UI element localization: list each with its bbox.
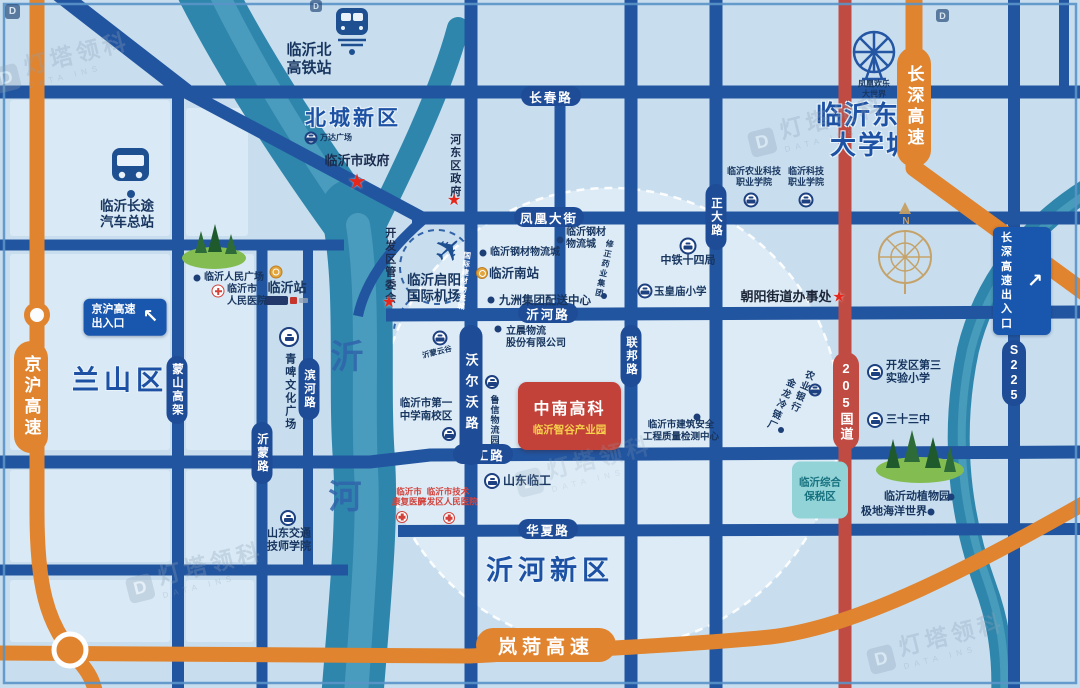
poi-polar-ocean-world: 极地海洋世界 <box>861 505 927 518</box>
renmin-square-dot <box>194 275 201 282</box>
poi-linyi-south-station: 临沂南站 <box>489 266 539 281</box>
expressway-junction-marker <box>54 634 86 666</box>
poi-renmin-square: 临沂人民广场 <box>204 272 264 284</box>
jinghu-exit-sign: 京沪高速 出入口 ↖ <box>84 299 167 336</box>
poi-renmin-hospital: 临沂市 人民医院 <box>227 284 267 308</box>
road-label-s225: S225 <box>1002 340 1026 406</box>
bonded-zone-block: 临沂综合 保税区 <box>792 462 848 519</box>
poi-shandong-lingong: 山东临工 <box>503 474 551 489</box>
road-label-woerwo: 沃尔沃路 <box>460 325 483 465</box>
poi-luxin-logistics-park: 鲁信物流园 <box>489 395 500 445</box>
poi-steel-logistics-city-1: 临沂钢材物流城 <box>490 247 560 259</box>
poi-north-rail-station: 临沂北 高铁站 <box>286 42 331 79</box>
expressway-label-lanhe: 岚菏高速 <box>476 628 616 662</box>
agri-tech-college-icon <box>744 193 759 208</box>
poi-yizhong-south-campus: 临沂市第一 中学南校区 <box>400 397 453 423</box>
district-label-yihe-new-district: 沂河新区 <box>486 555 614 586</box>
yimeng-cloud-valley-icon <box>433 331 448 346</box>
zhongtie-icon <box>680 238 697 255</box>
river-label-he: 河 <box>329 477 362 517</box>
district-label-lanshan: 兰山区 <box>72 365 168 396</box>
poi-hedong-district-government: 河东区政府 <box>447 134 460 199</box>
chaoyang-office-star-icon: ★ <box>832 290 845 305</box>
poi-jianzhu-quality-center: 临沂市建筑安全 工程质量检测中心 <box>643 419 719 442</box>
road-label-yimeng: 沂蒙路 <box>252 422 273 484</box>
watermark-corner-logo-icon: D <box>5 4 20 19</box>
linyi-area-map: 北城新区 临沂东部 大学城 兰山区 沂河新区 沂 河 京沪高速 长深高速 岚菏高… <box>0 0 1080 688</box>
jinlong-dot <box>778 427 784 433</box>
agricultural-bank-icon <box>809 384 822 397</box>
luxin-logistics-icon <box>485 375 499 389</box>
yizhong-icon <box>442 427 456 441</box>
road-label-changchun: 长春路 <box>521 86 581 106</box>
poi-city-hall: 临沂市政府 <box>324 153 389 169</box>
changshen-exit-sign: 长深高速 出入口 ↗ <box>993 227 1051 335</box>
arrow-northeast-icon: ↗ <box>1027 271 1043 290</box>
renmin-hospital-cross-icon <box>212 285 225 298</box>
poi-lichen-logistics: 立晨物流 股份有限公司 <box>506 326 566 350</box>
qingpi-plaza-icon <box>279 327 299 347</box>
district-label-beicheng: 北城新区 <box>305 107 401 131</box>
road-label-mengshan-viaduct: 蒙山高架 <box>167 356 188 424</box>
sanshisan-school-icon <box>867 412 883 428</box>
road-label-g205: 205国道 <box>833 352 859 450</box>
road-label-binhe: 滨河路 <box>299 358 320 420</box>
poi-sanshisan-school: 三十三中 <box>886 413 930 426</box>
wanda-plaza-icon <box>305 132 318 145</box>
poi-qingpi-culture-plaza: 青啤文化广场 <box>282 353 295 431</box>
road-label-fenghuang-street: 凤凰大街 <box>514 207 584 227</box>
poi-jiuzhou-distribution: 九洲集团配送中心 <box>499 294 591 308</box>
expressway-label-jinghu: 京沪高速 <box>14 341 48 453</box>
watermark-corner-logo-icon: D <box>936 9 949 22</box>
keji-college-icon <box>799 193 814 208</box>
poi-zoo-botanical-garden: 临沂动植物园 <box>884 490 950 503</box>
poi-yuhuangmiao-school: 玉皇庙小学 <box>654 286 707 299</box>
poi-steel-logistics-city-2: 临沂钢材 物流城 <box>566 227 606 251</box>
hedong-government-star-icon: ★ <box>447 193 461 209</box>
kangfu-hospital-cross-icon <box>396 511 408 523</box>
poi-zhongtie-14: 中铁十四局 <box>661 254 716 267</box>
poi-kaifaqu-hospital: 临沂市技术 开发区人民医院 <box>418 487 478 508</box>
zhongnan-hightech-subtitle: 临沂智谷产业园 <box>533 422 607 437</box>
development-zone-star-icon: ★ <box>382 295 396 311</box>
ocean-world-dot <box>928 509 935 516</box>
gangcai-2-dot <box>557 237 564 244</box>
compass-north-label: N <box>902 216 909 228</box>
xiuzheng-dot <box>601 293 607 299</box>
yuhuangmiao-school-icon <box>638 284 653 299</box>
poi-keji-college: 临沂科技 职业学院 <box>788 166 824 188</box>
road-label-huaxia: 华夏路 <box>518 519 578 539</box>
kaifaqu-hospital-cross-icon <box>443 512 455 524</box>
expressway-label-changshen: 长深高速 <box>897 47 931 167</box>
poi-disan-primary: 开发区第三 实验小学 <box>886 360 941 387</box>
poi-chaoyang-street-office: 朝阳街道办事处 <box>740 289 831 305</box>
linyi-south-station-icon <box>476 267 488 279</box>
jiaotong-college-icon <box>280 510 296 526</box>
road-label-zhengda: 正大路 <box>706 184 727 250</box>
poi-agri-tech-college: 临沂农业科技 职业学院 <box>727 166 781 188</box>
poi-jiaotong-college: 山东交通 技师学院 <box>267 528 311 555</box>
poi-linyi-station: 临沂站 <box>267 280 306 296</box>
disan-primary-icon <box>867 364 883 380</box>
zhongnan-hightech-park-block: 中南高科 临沂智谷产业园 <box>518 382 621 450</box>
poi-longdistance-bus-terminal: 临沂长途 汽车总站 <box>100 199 154 232</box>
river-label-yi: 沂 <box>331 337 364 377</box>
arrow-northwest-icon: ↖ <box>143 308 159 327</box>
watermark-corner-logo-icon: D <box>310 0 322 12</box>
jiuzhou-dot <box>488 297 495 304</box>
jinghu-interchange-marker <box>27 305 47 325</box>
poi-qiyang-airport: 临沂启阳 国际机场 <box>407 273 461 306</box>
jinghu-exit-sign-text: 京沪高速 出入口 <box>92 303 136 332</box>
city-hall-star-icon: ★ <box>348 172 367 193</box>
poi-wanda-plaza: 万达广场 <box>320 133 352 143</box>
zhongnan-hightech-title: 中南高科 <box>533 395 605 419</box>
linyi-station-icon <box>270 266 283 279</box>
changshen-exit-sign-text: 长深高速 出入口 <box>1001 231 1020 331</box>
lichen-dot <box>495 326 502 333</box>
road-label-lianbang: 联邦路 <box>621 325 642 387</box>
gangcai-1-dot <box>480 250 487 257</box>
zoo-dot <box>948 494 955 501</box>
shandong-lingong-icon <box>484 473 500 489</box>
poi-phoenix-world: 凤凰欢乐 大世界 <box>858 79 890 99</box>
